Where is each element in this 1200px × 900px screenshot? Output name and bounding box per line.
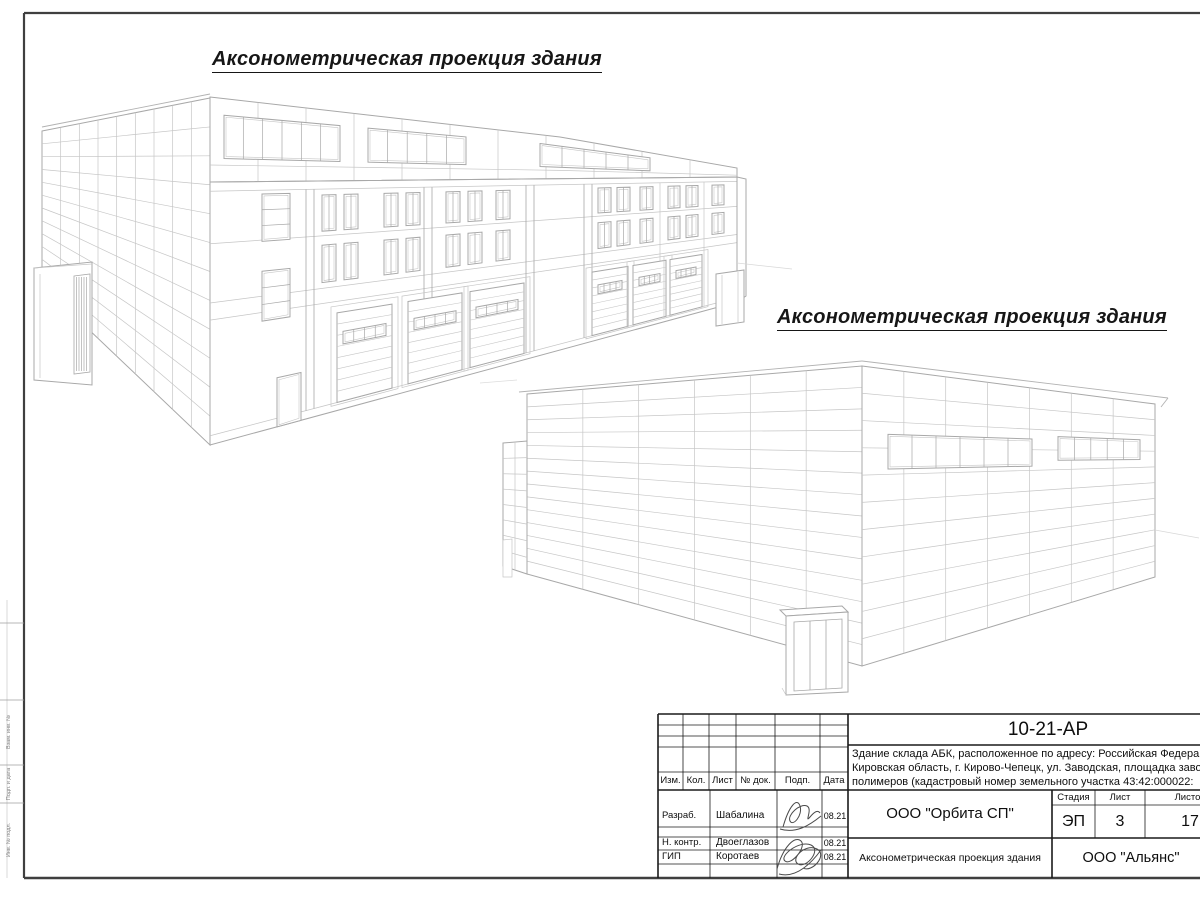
sheet-number: 3 (1095, 805, 1145, 838)
rev-header-podp: Подп. (775, 772, 820, 790)
stage-value: ЭП (1052, 805, 1095, 838)
date-gip: 08.21 (822, 850, 848, 864)
project-description-line3: полимеров (кадастровый номер земельного … (852, 775, 1200, 789)
sheets-total: 17 (1145, 805, 1200, 838)
building-1-wireframe (34, 94, 792, 445)
sheet-label: Лист (1095, 790, 1145, 805)
drawing-sheet: Аксонометрическая проекция здания Аксоно… (0, 0, 1200, 900)
building-2-wireframe (480, 361, 1199, 695)
drawing-caption: Аксонометрическая проекция здания (848, 838, 1052, 878)
signature-razrab (780, 803, 821, 831)
project-description-line1: Здание склада АБК, расположенное по адре… (852, 747, 1200, 761)
axonometric-title-middle: Аксонометрическая проекция здания (777, 306, 1167, 331)
role-gip: ГИП (662, 850, 710, 864)
organization-name: ООО "Орбита СП" (848, 790, 1052, 838)
rev-header-list: Лист (709, 772, 736, 790)
name-gip: Коротаев (716, 850, 776, 864)
doc-number: 10-21-АР (848, 715, 1200, 744)
project-description-line2: Кировская область, г. Кирово-Чепецк, ул.… (852, 761, 1200, 775)
name-nkontr: Двоеглазов (716, 836, 776, 850)
rev-header-doc: № док. (736, 772, 775, 790)
margin-label-inv-podl: Инв. № подл. (6, 795, 16, 885)
role-nkontr: Н. контр. (662, 836, 710, 850)
date-nkontr: 08.21 (822, 836, 848, 850)
role-razrab: Разраб. (662, 805, 710, 827)
project-description: Здание склада АБК, расположенное по адре… (852, 747, 1200, 790)
rev-header-izm: Изм. (658, 772, 683, 790)
rev-header-kol: Кол. (683, 772, 709, 790)
sheets-label: Листов (1145, 790, 1200, 805)
axonometric-title-top: Аксонометрическая проекция здания (212, 48, 602, 73)
stage-label: Стадия (1052, 790, 1095, 805)
rev-header-data: Дата (820, 772, 848, 790)
signature-nkontr-gip (777, 839, 821, 874)
date-razrab: 08.21 (822, 805, 848, 827)
name-razrab: Шабалина (716, 805, 776, 827)
contractor-name: ООО "Альянс" (1052, 838, 1200, 878)
